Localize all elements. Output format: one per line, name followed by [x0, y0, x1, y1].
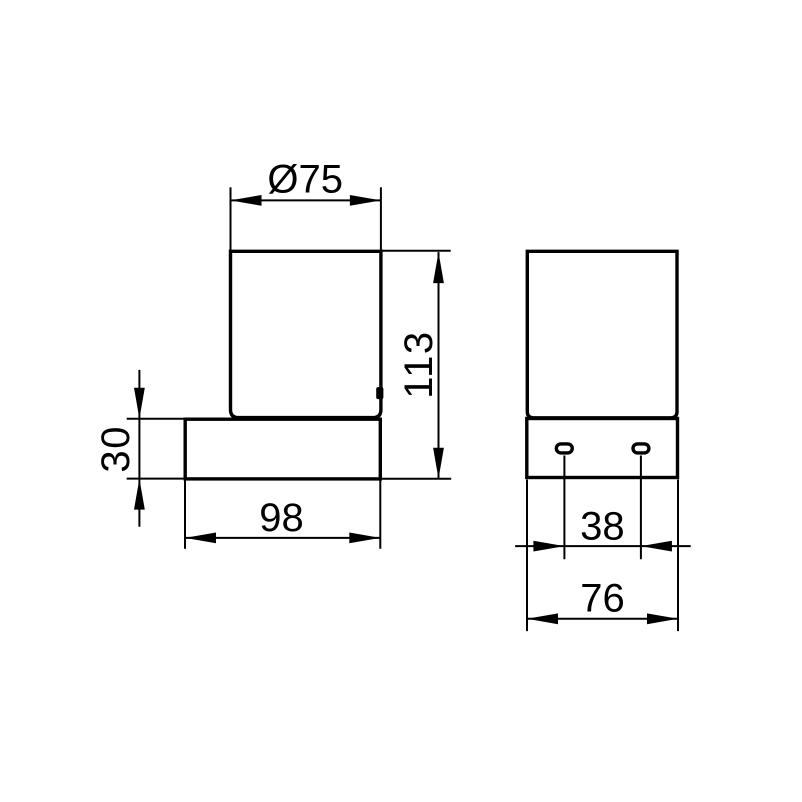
svg-text:98: 98 — [259, 496, 304, 540]
svg-text:30: 30 — [94, 425, 138, 473]
svg-text:38: 38 — [580, 504, 625, 548]
svg-text:76: 76 — [580, 576, 625, 620]
svg-text:Ø75: Ø75 — [267, 157, 343, 201]
svg-text:113: 113 — [397, 330, 441, 399]
